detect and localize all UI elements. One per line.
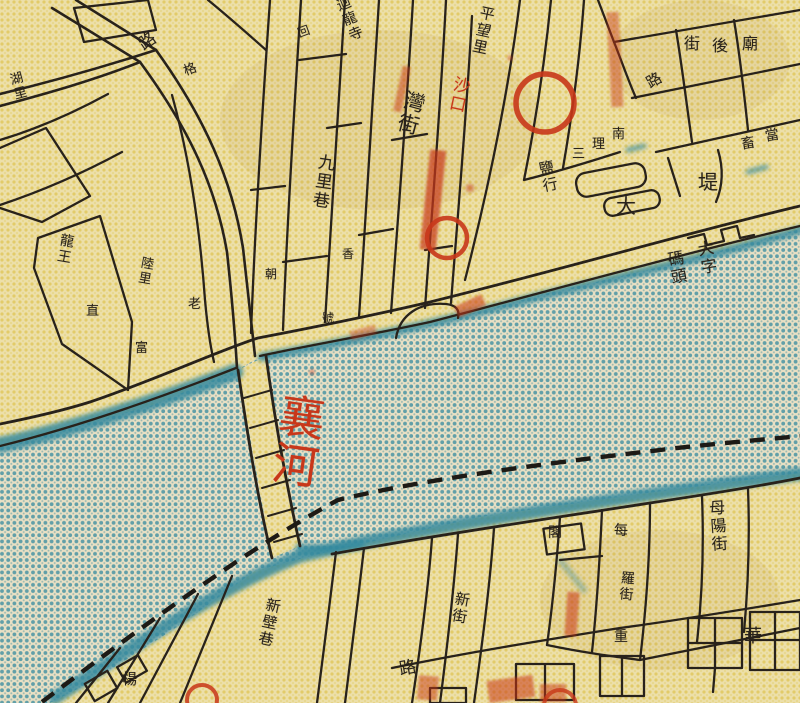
historical-map-scan: 路回迴龍寺格平望里灣街沙口九里巷湖里龍王直陸里老富朝香號街後廟路畜當南理三鹽行大… (0, 0, 800, 703)
map-artwork (0, 0, 800, 703)
